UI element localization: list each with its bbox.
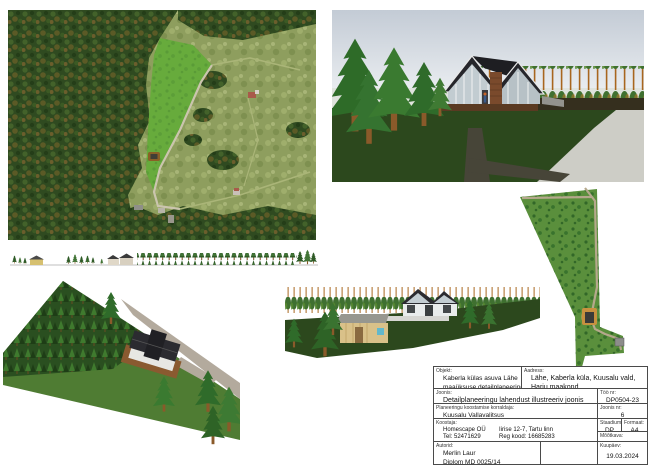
titleblock-empty-cell [541, 442, 598, 464]
drawing-value: Detailplaneeringu lahendust illustreeriv… [434, 396, 597, 404]
titleblock-organizer-cell: Planeeringu koostamise korraldaja: Kuusa… [434, 404, 598, 419]
drawing-label: Joonis: [434, 389, 597, 396]
outbuilding-footprint [615, 338, 624, 346]
render-street-view [332, 10, 644, 182]
elevation-tree-row [137, 253, 297, 265]
door [355, 327, 363, 343]
elevation-house-1 [29, 256, 44, 266]
terrace-band [383, 316, 449, 321]
person-figure [484, 93, 487, 96]
object-label: Objekt: [434, 367, 521, 374]
elevation-house-2 [107, 254, 134, 266]
work-no-value: DP0504-23 [598, 396, 647, 404]
titleblock-scale-cell: Mõõtkava: [598, 432, 647, 442]
elevation-trees-left [12, 256, 27, 265]
organizer-label: Planeeringu koostamise korraldaja: [434, 404, 597, 411]
compiler-name: Homescape OÜ [443, 427, 499, 434]
titleblock-address-cell: Aadress: Lähe, Kaberla küla, Kuusalu val… [522, 367, 647, 389]
plot-wedge [520, 189, 624, 367]
date-label: Kuupäev: [598, 442, 647, 449]
titleblock-date-cell: Kuupäev: 19.03.2024 [598, 442, 647, 464]
sheet-no-value: 6 [598, 411, 647, 419]
titleblock-compiler-cell: Koostaja: Homescape OÜ Iirise 12-7, Tart… [434, 419, 598, 442]
compiler-info: Homescape OÜ Iirise 12-7, Tartu linn Tel… [434, 426, 597, 441]
author-line1: Merlin Laur [434, 449, 540, 458]
window [377, 328, 384, 335]
scale-label: Mõõtkava: [598, 432, 647, 439]
elevation-tall-clump [296, 250, 317, 264]
titleblock-object-cell: Objekt: Kaberla külas asuva Lähe maaüksu… [434, 367, 522, 389]
render-birdseye [3, 277, 240, 467]
author-line2: Diplom MD 0025/14 [434, 458, 540, 465]
titleblock-sheetno-cell: Joonis nr: 6 [598, 404, 647, 419]
titleblock-drawing-cell: Joonis: Detailplaneeringu lahendust illu… [434, 389, 598, 404]
elevation-strip [10, 248, 318, 268]
format-label: Formaat: [622, 419, 647, 426]
address-line1: Lähe, Kaberla küla, Kuusalu vald, [522, 374, 647, 383]
compiler-address: Iirise 12-7, Tartu linn [499, 427, 595, 434]
scale-value [598, 439, 647, 440]
title-block: Objekt: Kaberla külas asuva Lähe maaüksu… [433, 366, 648, 465]
address-label: Aadress: [522, 367, 647, 374]
titleblock-format-cell: Formaat: A4 [622, 419, 647, 432]
site-plan [505, 187, 645, 367]
stage-label: Staadium: [598, 419, 621, 426]
object-line1: Kaberla külas asuva Lähe [434, 374, 521, 383]
compiler-reg: Reg kood: 16685283 [499, 434, 595, 441]
organizer-value: Kuusalu Vallavalitsus [434, 411, 597, 419]
author-label: Autorid: [434, 442, 540, 449]
titleblock-workno-cell: Töö nr: DP0504-23 [598, 389, 647, 404]
compiler-tel: Tel: 52471629 [443, 434, 499, 441]
planned-house-marker [148, 152, 160, 161]
titleblock-author-cell: Autorid: Merlin Laur Diplom MD 0025/14 [434, 442, 541, 464]
date-value: 19.03.2024 [598, 449, 647, 461]
aerial-photo [8, 10, 316, 240]
plan-sheet: Objekt: Kaberla külas asuva Lähe maaüksu… [0, 0, 650, 467]
work-no-label: Töö nr: [598, 389, 647, 396]
titleblock-stage-cell: Staadium: DP [598, 419, 622, 432]
elevation-trees-mid [66, 254, 104, 264]
sheet-no-label: Joonis nr: [598, 404, 647, 411]
compiler-label: Koostaja: [434, 419, 597, 426]
sauna-building [336, 314, 389, 343]
render-yard-view [285, 271, 540, 368]
planned-house-footprint [582, 308, 597, 325]
